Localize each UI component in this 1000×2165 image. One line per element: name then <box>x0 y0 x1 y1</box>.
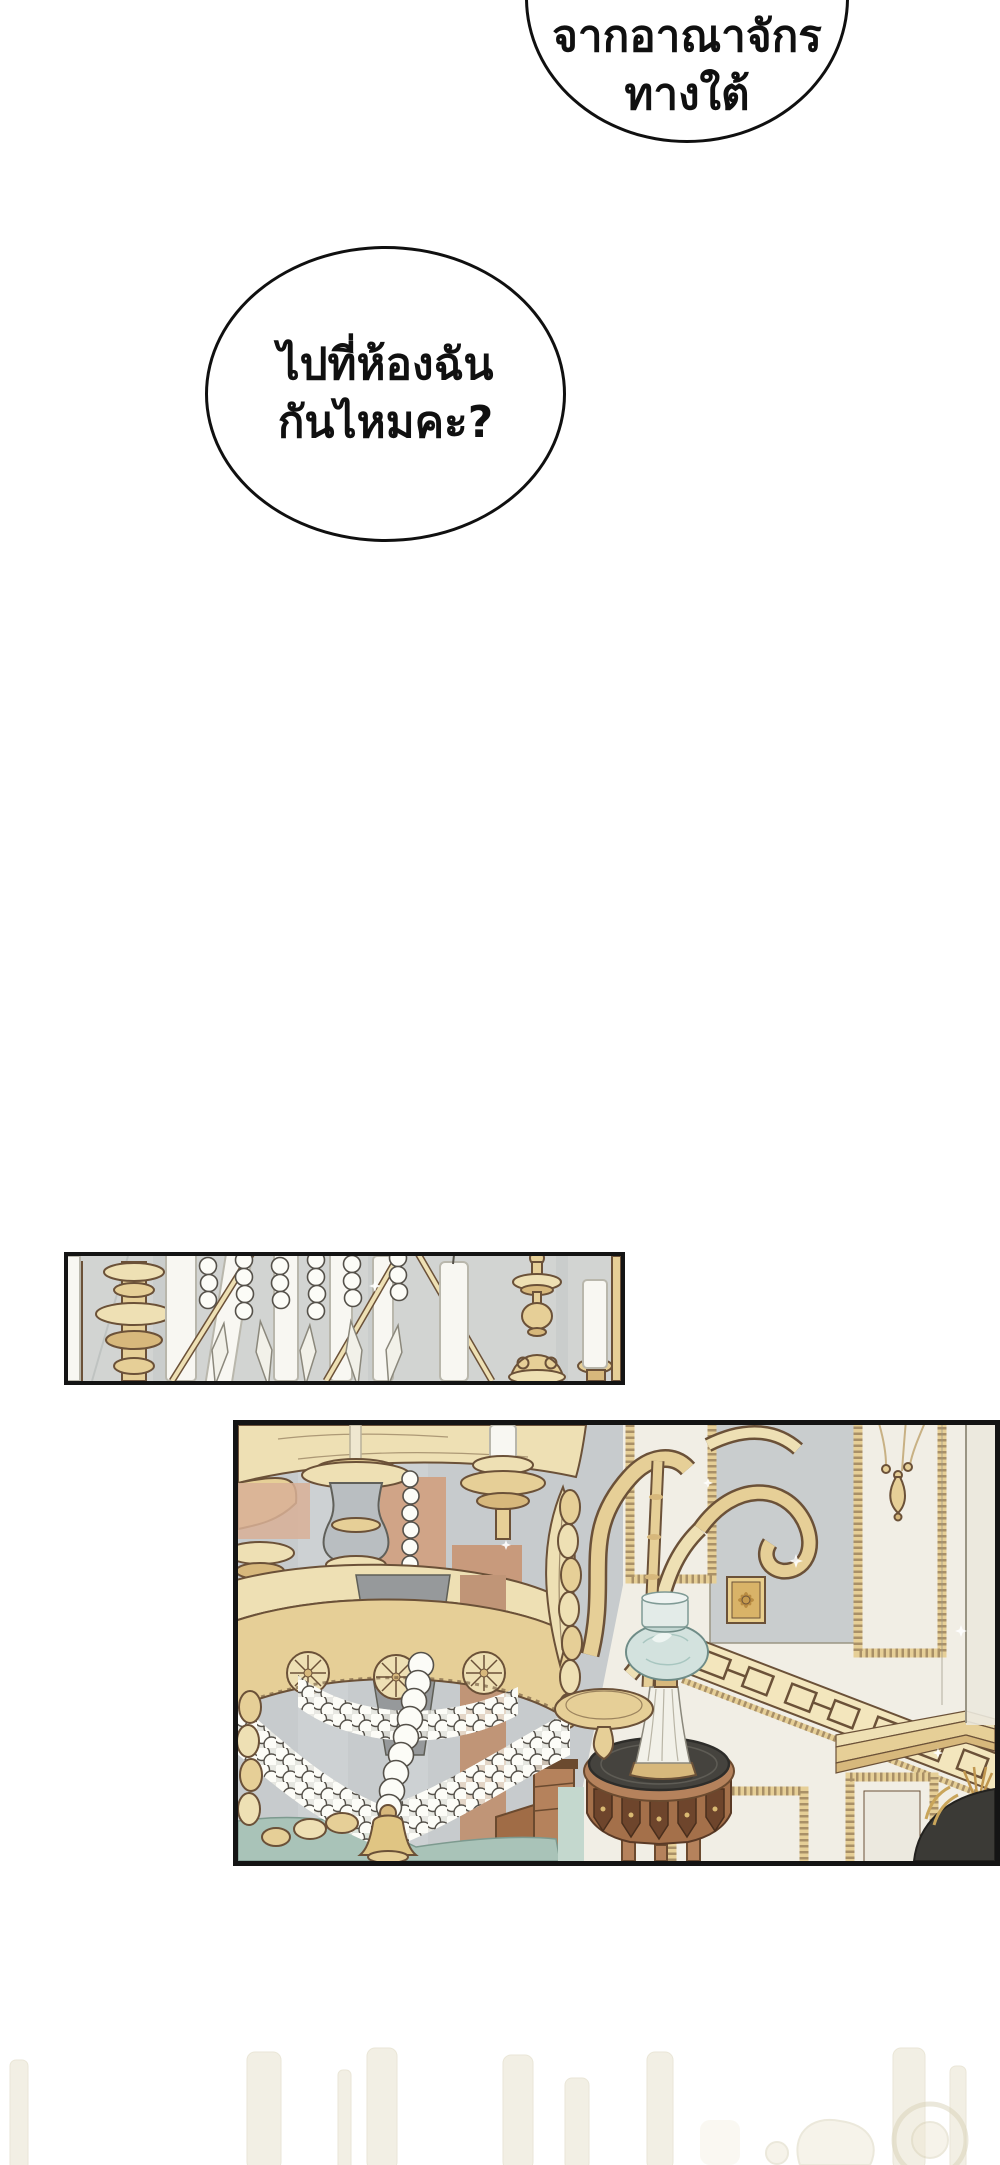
panel-room <box>233 1420 1000 1866</box>
speech-bubble-main: ไปที่ห้องฉัน กันไหมคะ? <box>205 246 566 542</box>
speech-line: ไปที่ห้องฉัน <box>277 336 493 394</box>
speech-line: จากอาณาจักร <box>552 8 822 66</box>
rosette-medallion <box>727 1577 765 1623</box>
panel-candles-art <box>68 1256 621 1381</box>
salmon-backdrop <box>238 1483 310 1539</box>
finial-drop <box>594 1727 613 1759</box>
ghost-art <box>0 2045 1000 2165</box>
webtoon-page: จากอาณาจักร ทางใต้ ไปที่ห้องฉัน กันไหมคะ… <box>0 0 1000 2165</box>
speech-bubble-top: จากอาณาจักร ทางใต้ <box>525 0 849 143</box>
ghost-next-panel-preview <box>0 2045 1000 2165</box>
speech-line: ทางใต้ <box>624 66 749 124</box>
panel-candles-strip <box>64 1252 625 1385</box>
wick-candle <box>440 1256 468 1381</box>
ghost-gold-ornament <box>700 2104 966 2165</box>
wall-corner-face <box>966 1425 995 1725</box>
speech-line: กันไหมคะ? <box>278 394 493 452</box>
panel-room-art <box>238 1425 995 1861</box>
curtain-sliver <box>558 1787 584 1861</box>
